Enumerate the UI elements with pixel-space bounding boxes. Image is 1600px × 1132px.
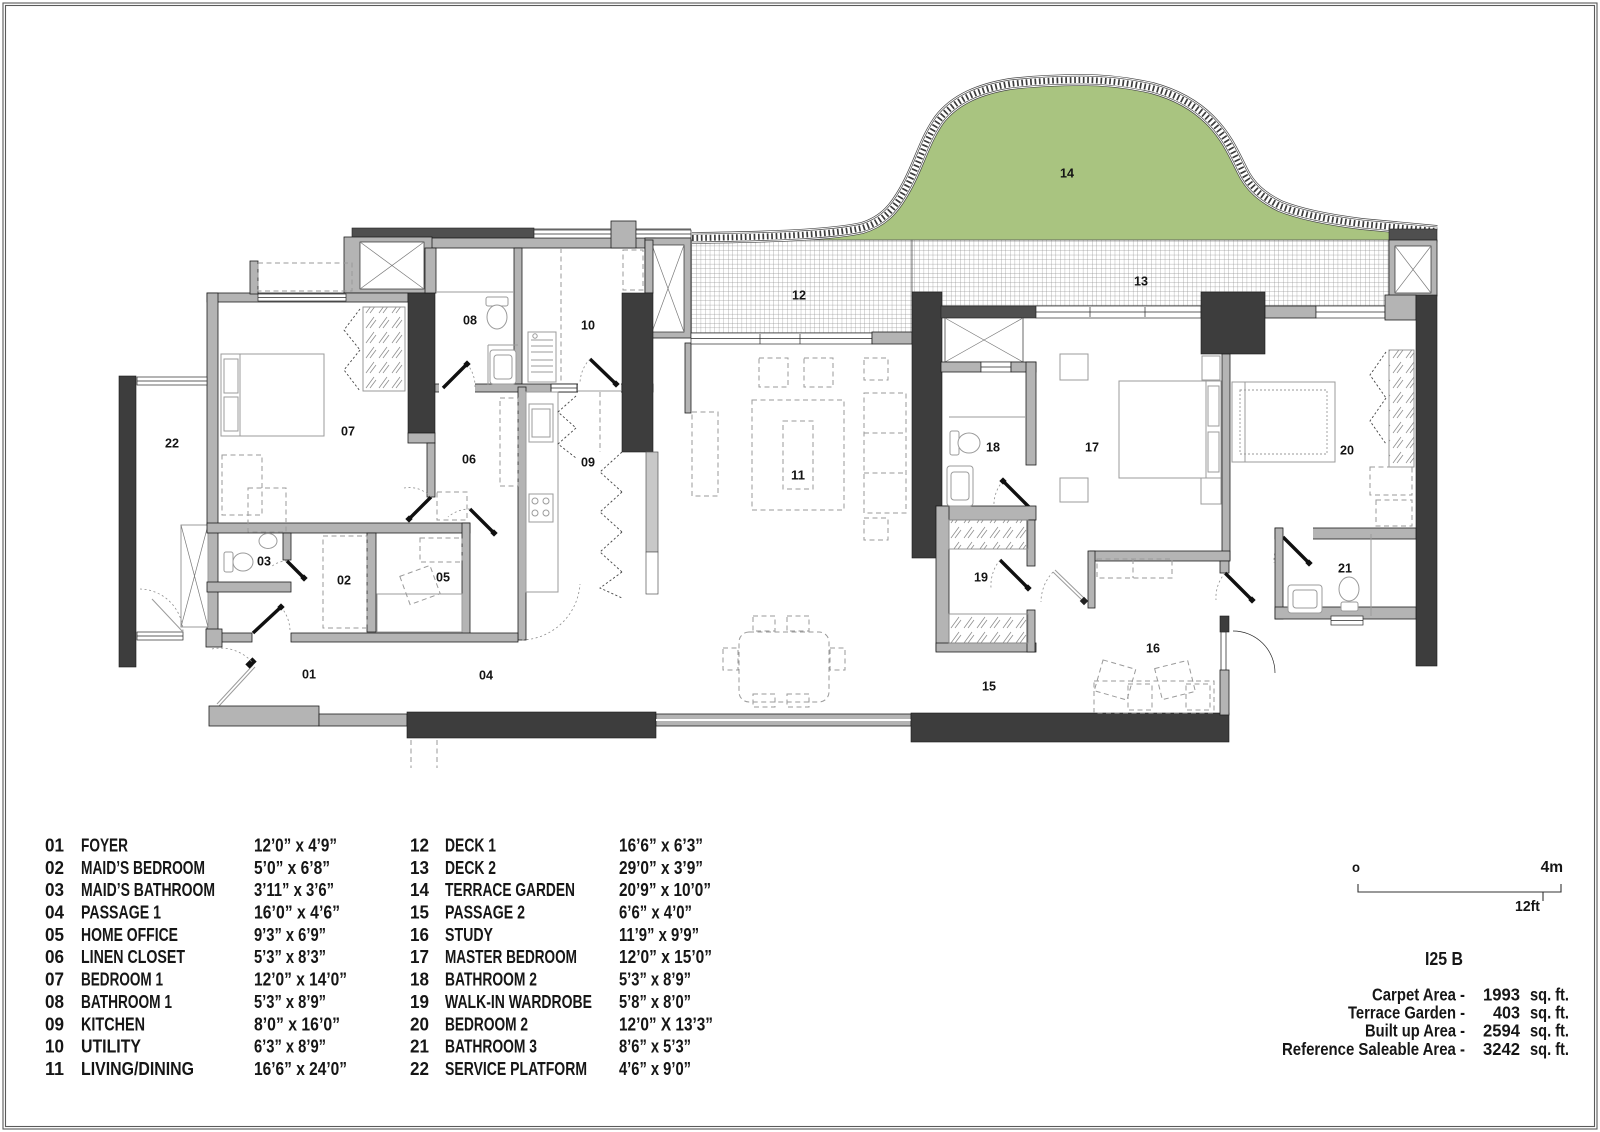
svg-text:LIVING/DINING: LIVING/DINING bbox=[81, 1058, 194, 1079]
svg-text:5’0” x 6’8”: 5’0” x 6’8” bbox=[254, 857, 330, 878]
svg-text:8’6” x 5’3”: 8’6” x 5’3” bbox=[619, 1036, 691, 1057]
svg-text:10: 10 bbox=[45, 1036, 64, 1057]
svg-text:06: 06 bbox=[45, 946, 64, 967]
svg-text:22: 22 bbox=[165, 437, 179, 451]
svg-text:LINEN CLOSET: LINEN CLOSET bbox=[81, 946, 186, 967]
svg-text:12’0” x 15’0”: 12’0” x 15’0” bbox=[619, 946, 712, 967]
svg-text:02: 02 bbox=[337, 574, 351, 588]
svg-text:12’0” x 14’0”: 12’0” x 14’0” bbox=[254, 969, 347, 990]
svg-text:Reference Saleable Area -: Reference Saleable Area - bbox=[1282, 1039, 1465, 1059]
svg-text:03: 03 bbox=[45, 879, 64, 900]
svg-text:2594: 2594 bbox=[1483, 1021, 1520, 1041]
svg-text:3’11” x 3’6”: 3’11” x 3’6” bbox=[254, 879, 334, 900]
svg-text:MASTER BEDROOM: MASTER BEDROOM bbox=[445, 946, 577, 967]
svg-text:16’6” x 24’0”: 16’6” x 24’0” bbox=[254, 1058, 347, 1079]
svg-text:03: 03 bbox=[257, 555, 271, 569]
svg-text:09: 09 bbox=[581, 456, 595, 470]
svg-text:9’3” x 6’9”: 9’3” x 6’9” bbox=[254, 924, 326, 945]
svg-text:22: 22 bbox=[410, 1058, 429, 1079]
svg-text:01: 01 bbox=[45, 835, 64, 856]
svg-text:07: 07 bbox=[341, 425, 355, 439]
svg-text:BATHROOM 1: BATHROOM 1 bbox=[81, 991, 172, 1012]
svg-text:WALK-IN WARDROBE: WALK-IN WARDROBE bbox=[445, 991, 592, 1012]
svg-text:FOYER: FOYER bbox=[81, 835, 128, 856]
svg-text:11: 11 bbox=[791, 469, 805, 483]
svg-text:HOME OFFICE: HOME OFFICE bbox=[81, 924, 178, 945]
svg-text:sq. ft.: sq. ft. bbox=[1530, 985, 1569, 1005]
svg-text:07: 07 bbox=[45, 969, 64, 990]
svg-text:DECK 2: DECK 2 bbox=[445, 857, 496, 878]
svg-text:20: 20 bbox=[410, 1013, 429, 1034]
svg-text:13: 13 bbox=[1134, 275, 1148, 289]
svg-text:UTILITY: UTILITY bbox=[81, 1036, 142, 1057]
svg-text:PASSAGE 1: PASSAGE 1 bbox=[81, 902, 161, 923]
svg-text:12’0” X 13’3”: 12’0” X 13’3” bbox=[619, 1013, 713, 1034]
svg-text:16’0” x 4’6”: 16’0” x 4’6” bbox=[254, 902, 340, 923]
svg-text:Carpet Area -: Carpet Area - bbox=[1372, 985, 1465, 1005]
svg-text:I25 B: I25 B bbox=[1425, 948, 1463, 969]
svg-text:o: o bbox=[1352, 859, 1360, 875]
svg-text:02: 02 bbox=[45, 857, 64, 878]
svg-text:16: 16 bbox=[1146, 642, 1160, 656]
svg-text:09: 09 bbox=[45, 1013, 64, 1034]
svg-text:21: 21 bbox=[410, 1036, 429, 1057]
svg-text:20: 20 bbox=[1340, 444, 1354, 458]
svg-text:17: 17 bbox=[1085, 441, 1099, 455]
svg-text:BATHROOM 3: BATHROOM 3 bbox=[445, 1036, 537, 1057]
svg-text:21: 21 bbox=[1338, 562, 1352, 576]
svg-text:16’6” x 6’3”: 16’6” x 6’3” bbox=[619, 835, 703, 856]
svg-text:6’3” x 8’9”: 6’3” x 8’9” bbox=[254, 1036, 326, 1057]
svg-text:12’0” x 4’9”: 12’0” x 4’9” bbox=[254, 835, 337, 856]
svg-text:19: 19 bbox=[974, 571, 988, 585]
svg-text:20’9” x 10’0”: 20’9” x 10’0” bbox=[619, 879, 711, 900]
svg-text:MAID’S BEDROOM: MAID’S BEDROOM bbox=[81, 857, 205, 878]
svg-text:PASSAGE 2: PASSAGE 2 bbox=[445, 902, 525, 923]
svg-text:12: 12 bbox=[792, 289, 806, 303]
svg-text:SERVICE PLATFORM: SERVICE PLATFORM bbox=[445, 1058, 587, 1079]
svg-text:14: 14 bbox=[410, 879, 430, 900]
svg-text:4’6” x 9’0”: 4’6” x 9’0” bbox=[619, 1058, 691, 1079]
svg-text:Built up Area -: Built up Area - bbox=[1365, 1021, 1465, 1041]
svg-text:04: 04 bbox=[479, 669, 493, 683]
svg-text:16: 16 bbox=[410, 924, 429, 945]
svg-text:06: 06 bbox=[462, 453, 476, 467]
svg-text:15: 15 bbox=[982, 680, 996, 694]
svg-text:11’9” x 9’9”: 11’9” x 9’9” bbox=[619, 924, 699, 945]
svg-text:sq. ft.: sq. ft. bbox=[1530, 1039, 1569, 1059]
svg-text:BEDROOM 2: BEDROOM 2 bbox=[445, 1013, 528, 1034]
svg-text:10: 10 bbox=[581, 319, 595, 333]
svg-text:STUDY: STUDY bbox=[445, 924, 494, 945]
svg-text:DECK 1: DECK 1 bbox=[445, 835, 496, 856]
svg-text:29’0” x 3’9”: 29’0” x 3’9” bbox=[619, 857, 703, 878]
svg-text:5’3” x 8’3”: 5’3” x 8’3” bbox=[254, 946, 326, 967]
svg-text:1993: 1993 bbox=[1483, 985, 1520, 1005]
svg-text:12ft: 12ft bbox=[1515, 898, 1540, 915]
svg-text:08: 08 bbox=[463, 314, 477, 328]
svg-text:14: 14 bbox=[1060, 167, 1074, 181]
svg-text:KITCHEN: KITCHEN bbox=[81, 1013, 145, 1034]
svg-text:8’0” x 16’0”: 8’0” x 16’0” bbox=[254, 1013, 340, 1034]
svg-text:18: 18 bbox=[410, 969, 429, 990]
svg-text:04: 04 bbox=[45, 902, 65, 923]
svg-text:19: 19 bbox=[410, 991, 429, 1012]
svg-text:01: 01 bbox=[302, 668, 316, 682]
svg-text:6’6” x 4’0”: 6’6” x 4’0” bbox=[619, 902, 692, 923]
svg-text:sq. ft.: sq. ft. bbox=[1530, 1021, 1569, 1041]
svg-text:4m: 4m bbox=[1541, 859, 1563, 876]
svg-text:TERRACE GARDEN: TERRACE GARDEN bbox=[445, 879, 575, 900]
svg-text:12: 12 bbox=[410, 835, 429, 856]
svg-text:05: 05 bbox=[45, 924, 64, 945]
svg-text:MAID’S BATHROOM: MAID’S BATHROOM bbox=[81, 879, 215, 900]
svg-text:Terrace Garden -: Terrace Garden - bbox=[1348, 1003, 1465, 1023]
svg-text:15: 15 bbox=[410, 902, 429, 923]
svg-text:17: 17 bbox=[410, 946, 429, 967]
svg-text:403: 403 bbox=[1493, 1003, 1520, 1023]
svg-text:11: 11 bbox=[45, 1058, 64, 1079]
svg-text:13: 13 bbox=[410, 857, 429, 878]
svg-text:5’3” x 8’9”: 5’3” x 8’9” bbox=[254, 991, 326, 1012]
svg-text:05: 05 bbox=[436, 571, 450, 585]
svg-text:5’8” x 8’0”: 5’8” x 8’0” bbox=[619, 991, 691, 1012]
svg-text:18: 18 bbox=[986, 441, 1000, 455]
svg-text:BEDROOM 1: BEDROOM 1 bbox=[81, 969, 163, 990]
svg-text:08: 08 bbox=[45, 991, 64, 1012]
svg-text:sq. ft.: sq. ft. bbox=[1530, 1003, 1569, 1023]
svg-text:5’3” x 8’9”: 5’3” x 8’9” bbox=[619, 969, 691, 990]
svg-text:BATHROOM 2: BATHROOM 2 bbox=[445, 969, 537, 990]
svg-text:3242: 3242 bbox=[1483, 1039, 1520, 1059]
